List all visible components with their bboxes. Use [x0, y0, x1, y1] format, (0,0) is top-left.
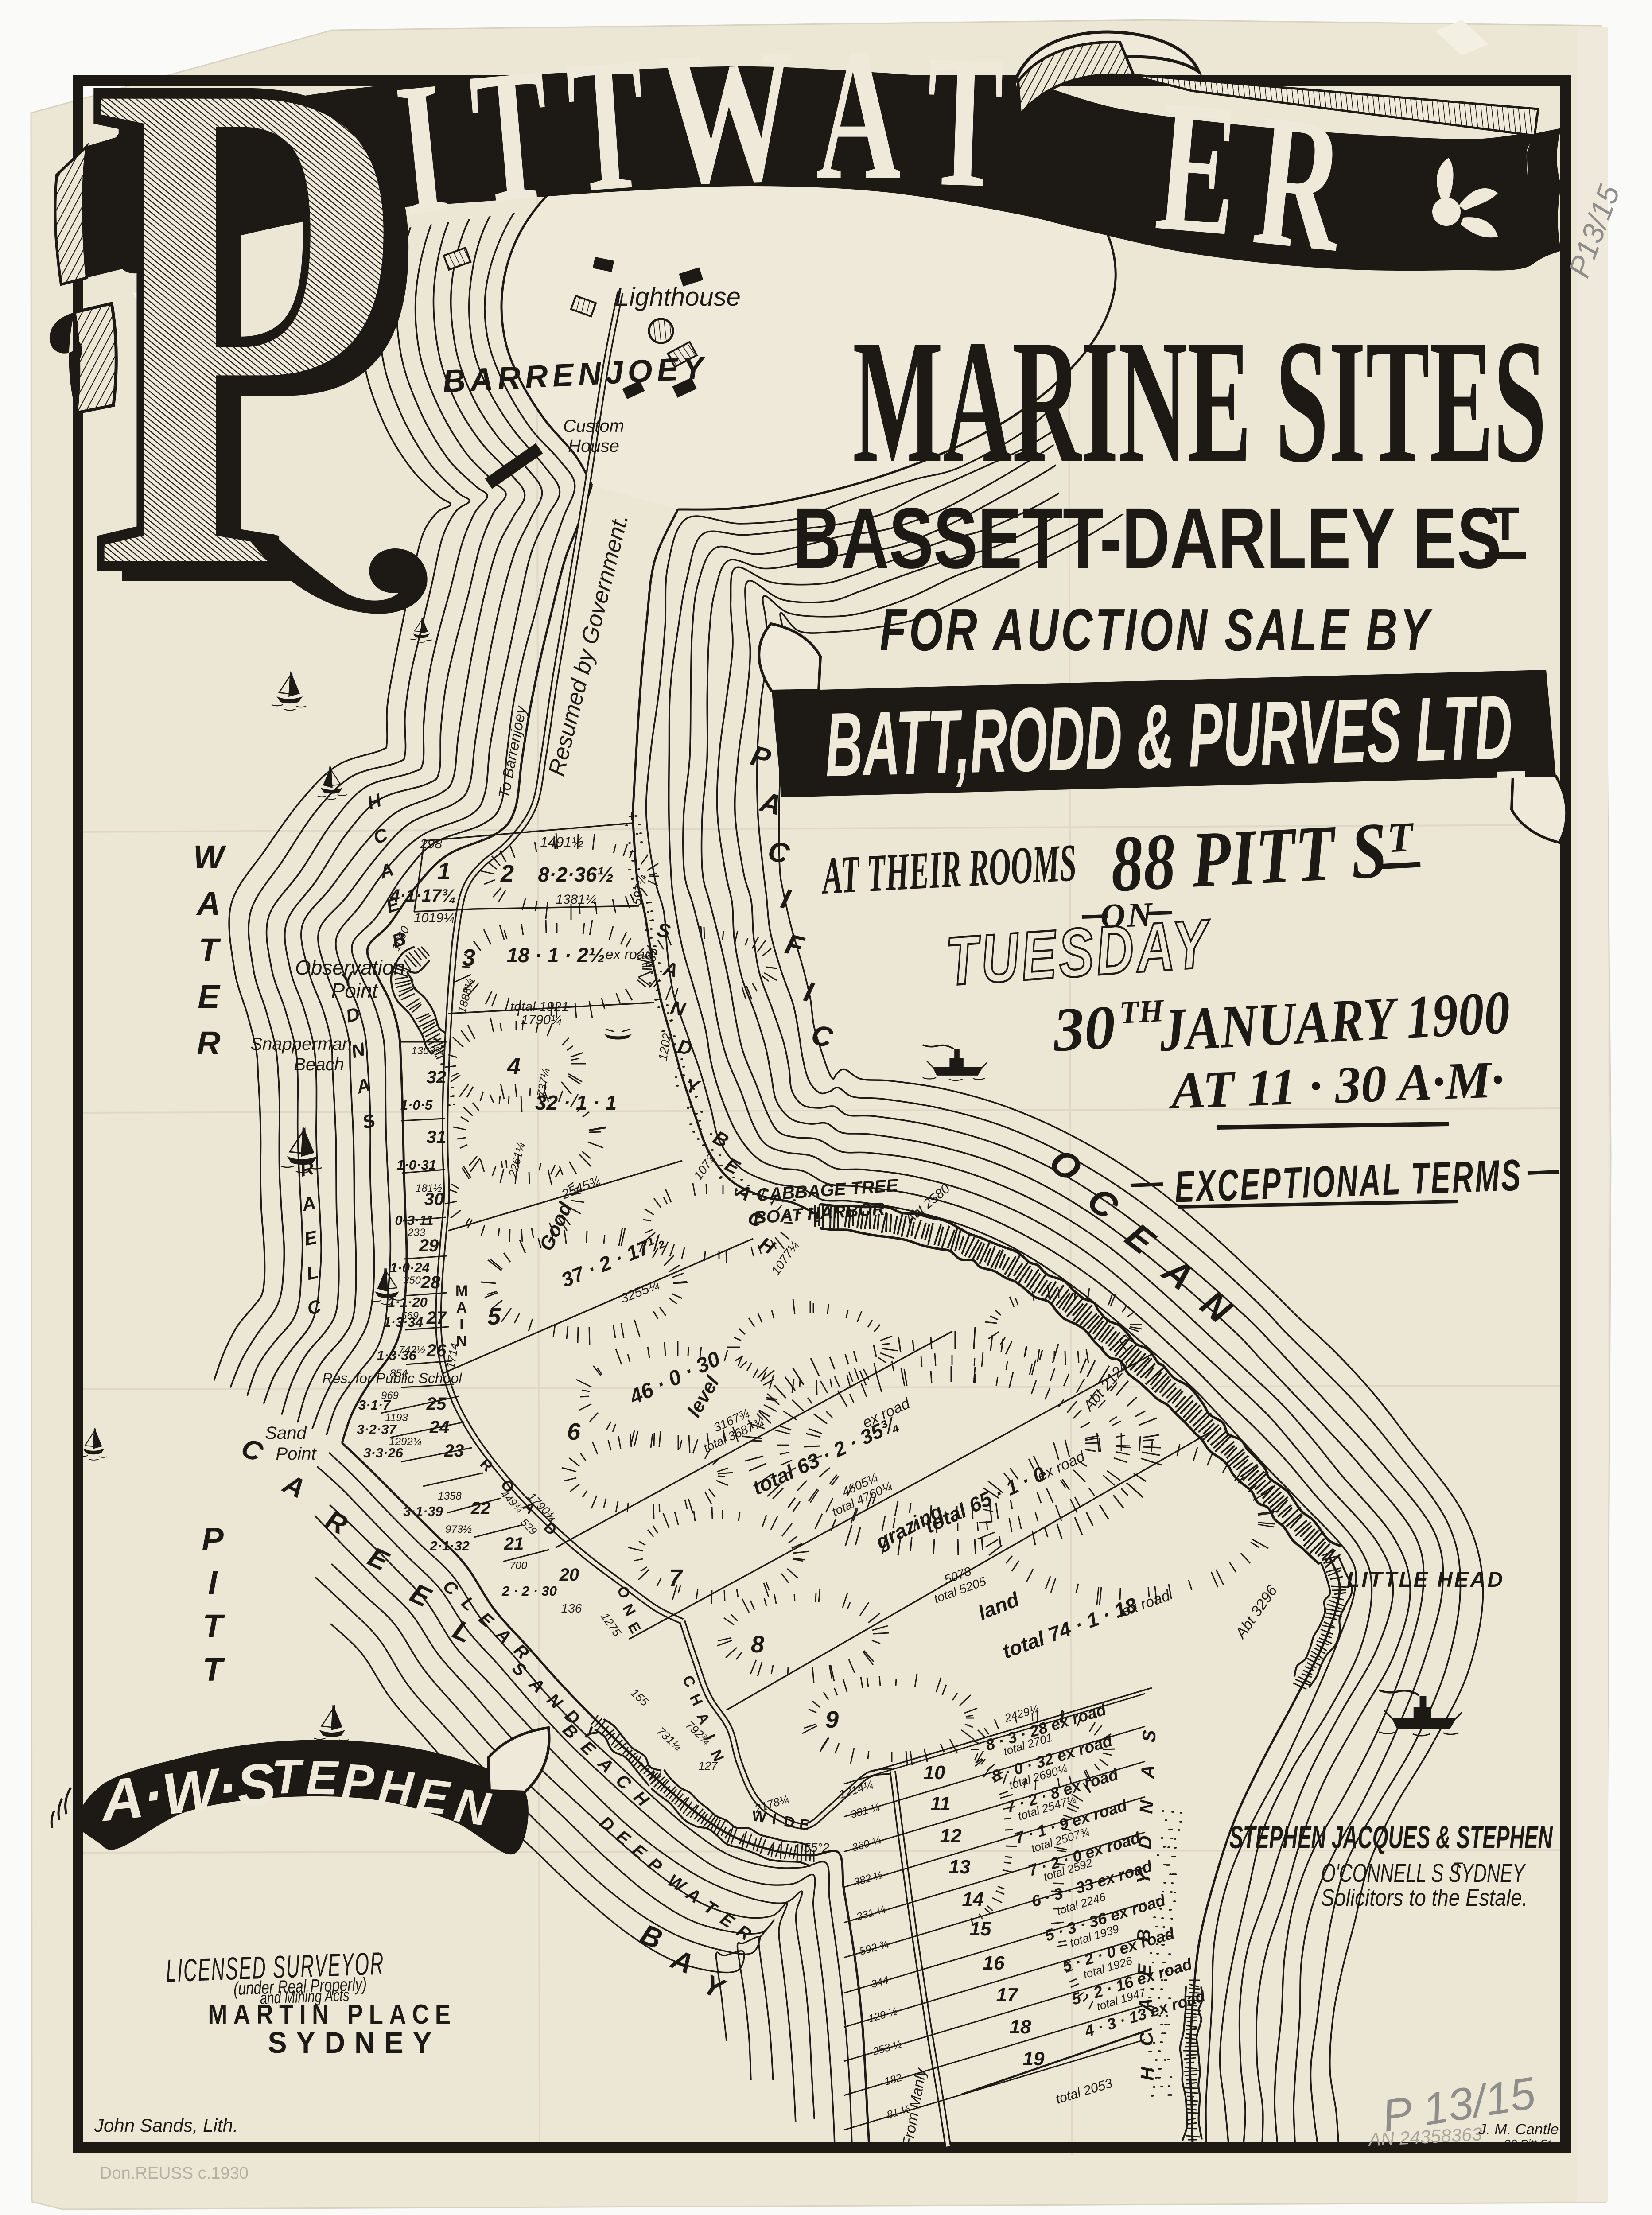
svg-text:8·2·36½: 8·2·36½ [538, 863, 614, 886]
svg-text:1358: 1358 [438, 1490, 462, 1502]
svg-text:1303¾: 1303¾ [411, 1045, 443, 1057]
svg-text:90 Pitt St: 90 Pitt St [1504, 2137, 1551, 2150]
svg-text:18: 18 [1010, 2016, 1031, 2038]
svg-text:H: H [376, 1759, 416, 1816]
svg-text:T: T [202, 1608, 225, 1644]
svg-text:E: E [306, 1750, 340, 1804]
svg-text:55°2: 55°2 [804, 1841, 829, 1854]
svg-text:1193: 1193 [385, 1412, 408, 1424]
svg-text:350: 350 [403, 1275, 421, 1286]
svg-text:30: 30 [1051, 993, 1117, 1065]
svg-text:P: P [341, 1753, 376, 1809]
svg-text:3: 3 [462, 944, 475, 971]
svg-text:E: E [198, 978, 221, 1015]
svg-text:A: A [816, 10, 901, 220]
svg-text:AT 11 · 30 A·M·: AT 11 · 30 A·M· [1167, 1050, 1505, 1120]
svg-text:T: T [198, 932, 221, 968]
svg-text:3·1·39: 3·1·39 [403, 1504, 443, 1519]
svg-text:Custom: Custom [563, 416, 624, 436]
svg-text:1·3·34: 1·3·34 [383, 1314, 423, 1330]
svg-text:15: 15 [970, 1918, 991, 1940]
svg-text:17: 17 [996, 1984, 1019, 2006]
svg-text:O'CONNELL S SYDNEY: O'CONNELL S SYDNEY [1321, 1858, 1526, 1887]
svg-text:30: 30 [424, 1189, 444, 1209]
svg-text:MARTIN PLACE: MARTIN PLACE [208, 1999, 456, 2030]
svg-text:24: 24 [429, 1418, 450, 1437]
svg-text:A: A [456, 1299, 467, 1316]
svg-text:Point: Point [276, 1444, 317, 1464]
svg-text:1·3·36: 1·3·36 [377, 1348, 416, 1363]
svg-text:127: 127 [698, 1759, 718, 1772]
svg-text:I: I [459, 1316, 463, 1333]
svg-text:1491½: 1491½ [540, 834, 583, 850]
svg-text:4·1·17¾: 4·1·17¾ [390, 886, 456, 905]
svg-text:W: W [193, 839, 227, 875]
svg-text:88 PITT S: 88 PITT S [1108, 806, 1389, 909]
svg-text:298: 298 [420, 837, 442, 851]
svg-text:Solicitors to the Estale.: Solicitors to the Estale. [1321, 1885, 1528, 1911]
svg-text:969: 969 [381, 1390, 399, 1402]
svg-text:26: 26 [426, 1341, 447, 1360]
svg-text:J. M. Cantle: J. M. Cantle [1478, 2121, 1559, 2138]
svg-text:1790¼: 1790¼ [521, 1013, 562, 1027]
svg-text:BASSETT-DARLEY ES: BASSETT-DARLEY ES [793, 490, 1501, 587]
svg-text:18 · 1 · 2½: 18 · 1 · 2½ [507, 944, 605, 967]
svg-text:STEPHEN JACQUES & STEPHEN: STEPHEN JACQUES & STEPHEN [1229, 1819, 1553, 1855]
svg-text:H: H [1136, 2066, 1158, 2081]
svg-text:Beach: Beach [294, 1055, 344, 1074]
svg-text:6: 6 [567, 1418, 581, 1445]
svg-text:23: 23 [444, 1441, 464, 1461]
svg-text:22: 22 [470, 1499, 491, 1518]
svg-text:21: 21 [504, 1534, 524, 1554]
svg-text:I: I [208, 1564, 218, 1601]
svg-text:7: 7 [669, 1565, 684, 1591]
svg-text:0·3·11: 0·3·11 [395, 1212, 433, 1228]
svg-text:2: 2 [500, 860, 514, 887]
svg-text:8: 8 [751, 1631, 764, 1658]
svg-text:S: S [1138, 1729, 1160, 1743]
svg-text:1381¼: 1381¼ [556, 892, 596, 907]
svg-text:House: House [568, 436, 619, 456]
svg-text:700: 700 [509, 1560, 528, 1572]
svg-text:1: 1 [437, 858, 451, 885]
svg-text:P: P [202, 1521, 224, 1558]
svg-text:1292¼: 1292¼ [389, 1436, 421, 1448]
svg-text:BATT,RODD & PURVES LTD: BATT,RODD & PURVES LTD [824, 676, 1514, 796]
svg-text:Lighthouse: Lighthouse [615, 283, 741, 311]
svg-text:2 · 2 · 30: 2 · 2 · 30 [501, 1583, 557, 1599]
svg-text:John Sands, Lith.: John Sands, Lith. [94, 2115, 238, 2136]
svg-text:total 1921: total 1921 [510, 999, 569, 1014]
svg-text:Snapperman: Snapperman [250, 1034, 352, 1054]
svg-text:19: 19 [1023, 2048, 1045, 2070]
svg-text:3·2·37: 3·2·37 [357, 1422, 397, 1437]
svg-text:28: 28 [420, 1273, 441, 1292]
svg-text:12: 12 [940, 1825, 962, 1847]
svg-text:4: 4 [507, 1053, 521, 1080]
svg-text:25: 25 [426, 1394, 447, 1414]
svg-text:D: D [783, 1813, 796, 1831]
svg-text:A: A [1137, 1764, 1158, 1780]
svg-text:Don.REUSS c.1930: Don.REUSS c.1930 [100, 2164, 249, 2183]
svg-text:MARINE SITES: MARINE SITES [853, 303, 1547, 499]
svg-text:1019¼: 1019¼ [414, 911, 455, 925]
svg-text:T: T [1491, 498, 1520, 550]
svg-text:11: 11 [930, 1793, 951, 1815]
svg-text:T: T [1453, 1860, 1463, 1877]
svg-text:9: 9 [825, 1706, 839, 1733]
svg-text:FOR AUCTION SALE BY: FOR AUCTION SALE BY [880, 597, 1433, 664]
svg-text:T: T [923, 15, 1006, 228]
svg-text:Point: Point [331, 979, 379, 1002]
svg-text:20: 20 [559, 1565, 579, 1585]
svg-text:973½: 973½ [445, 1523, 472, 1535]
svg-text:R: R [197, 1025, 221, 1061]
svg-text:T: T [1386, 813, 1416, 861]
svg-text:T: T [562, 18, 652, 233]
svg-text:13: 13 [949, 1856, 971, 1878]
svg-text:LITTLE HEAD: LITTLE HEAD [1347, 1568, 1504, 1592]
svg-text:32: 32 [427, 1068, 447, 1087]
svg-text:1·1·20: 1·1·20 [388, 1294, 428, 1310]
svg-text:Sand: Sand [265, 1423, 307, 1443]
svg-text:W: W [656, 9, 800, 224]
svg-text:C: C [1135, 2032, 1157, 2047]
svg-text:136: 136 [561, 1601, 582, 1615]
svg-text:N: N [1135, 1799, 1157, 1815]
svg-text:Res. for Public School: Res. for Public School [323, 1370, 463, 1386]
svg-text:16: 16 [983, 1952, 1005, 1974]
svg-text:1·0·31: 1·0·31 [396, 1157, 436, 1173]
svg-text:1·0·5: 1·0·5 [400, 1097, 433, 1113]
svg-text:31: 31 [427, 1127, 447, 1147]
svg-text:10: 10 [924, 1762, 945, 1784]
svg-text:A: A [196, 885, 221, 922]
svg-text:5: 5 [487, 1303, 501, 1330]
svg-text:T: T [271, 1749, 306, 1804]
svg-text:14: 14 [962, 1889, 984, 1910]
svg-text:P: P [89, 0, 402, 723]
svg-text:29: 29 [419, 1236, 439, 1255]
svg-text:SYDNEY: SYDNEY [268, 2026, 441, 2060]
svg-text:2·1·32: 2·1·32 [429, 1538, 470, 1554]
svg-text:T: T [202, 1651, 225, 1688]
svg-text:27: 27 [426, 1308, 447, 1328]
svg-text:M: M [455, 1282, 468, 1299]
